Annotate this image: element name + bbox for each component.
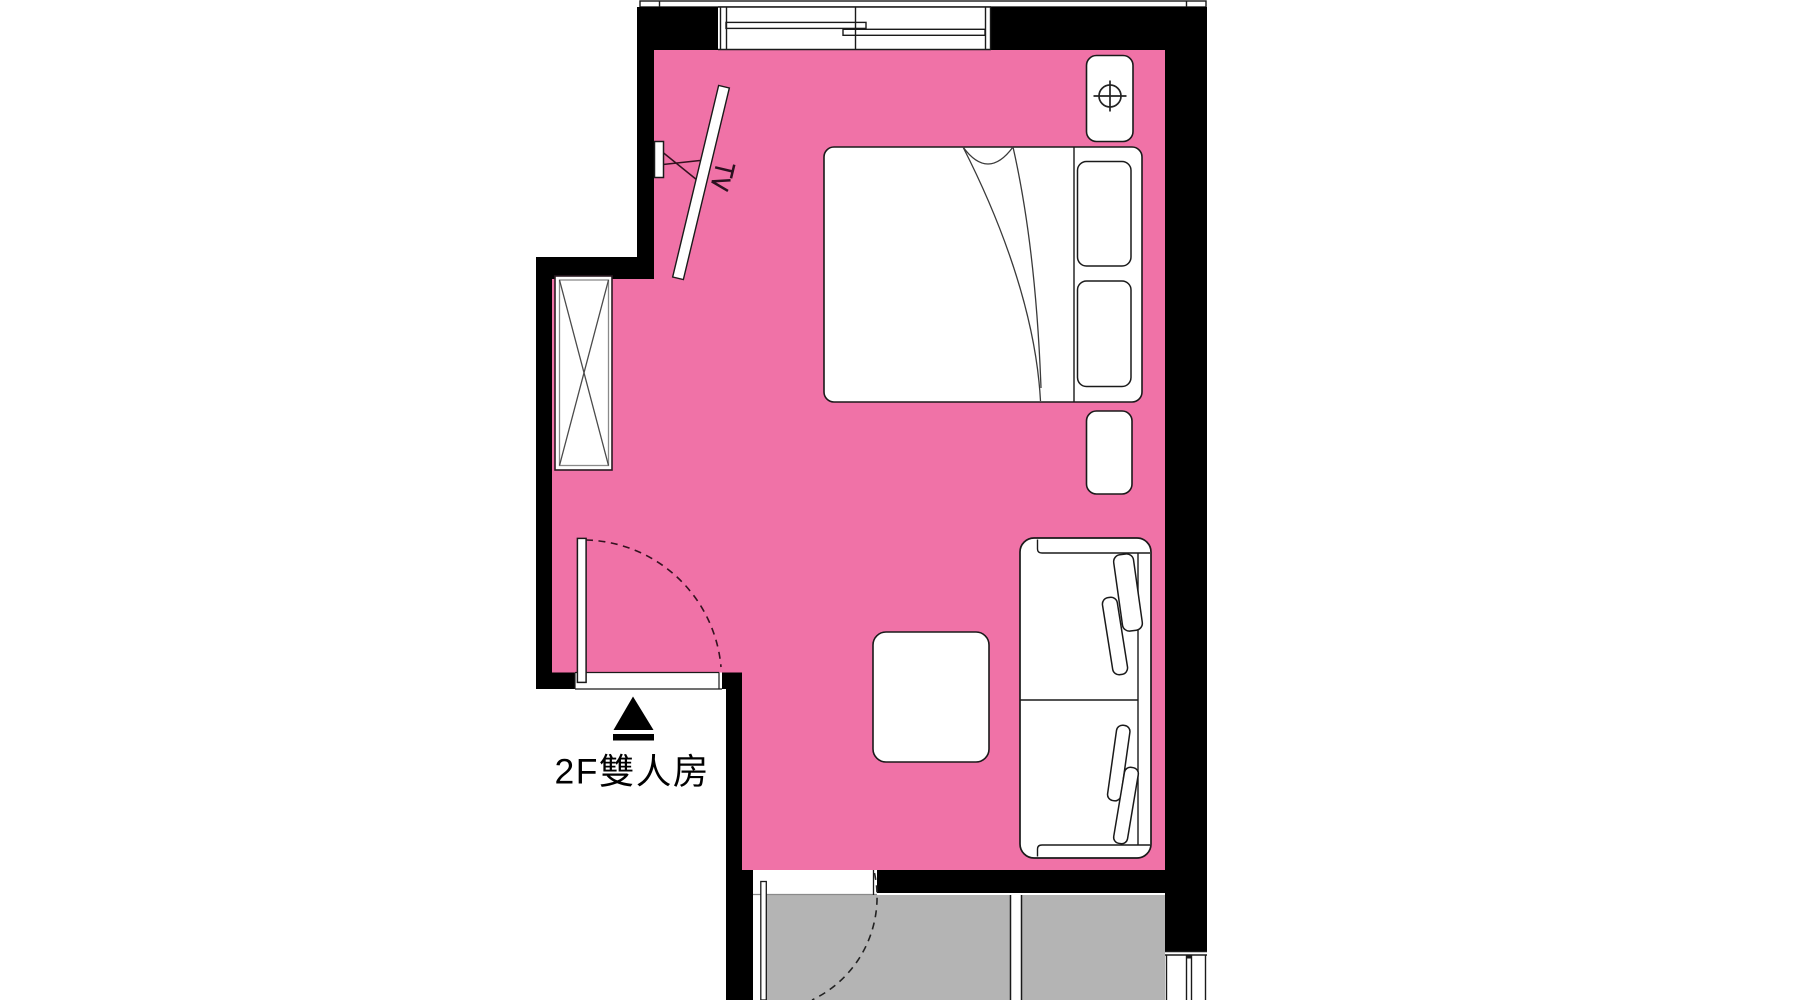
svg-text:2F雙人房: 2F雙人房 [555, 752, 710, 792]
